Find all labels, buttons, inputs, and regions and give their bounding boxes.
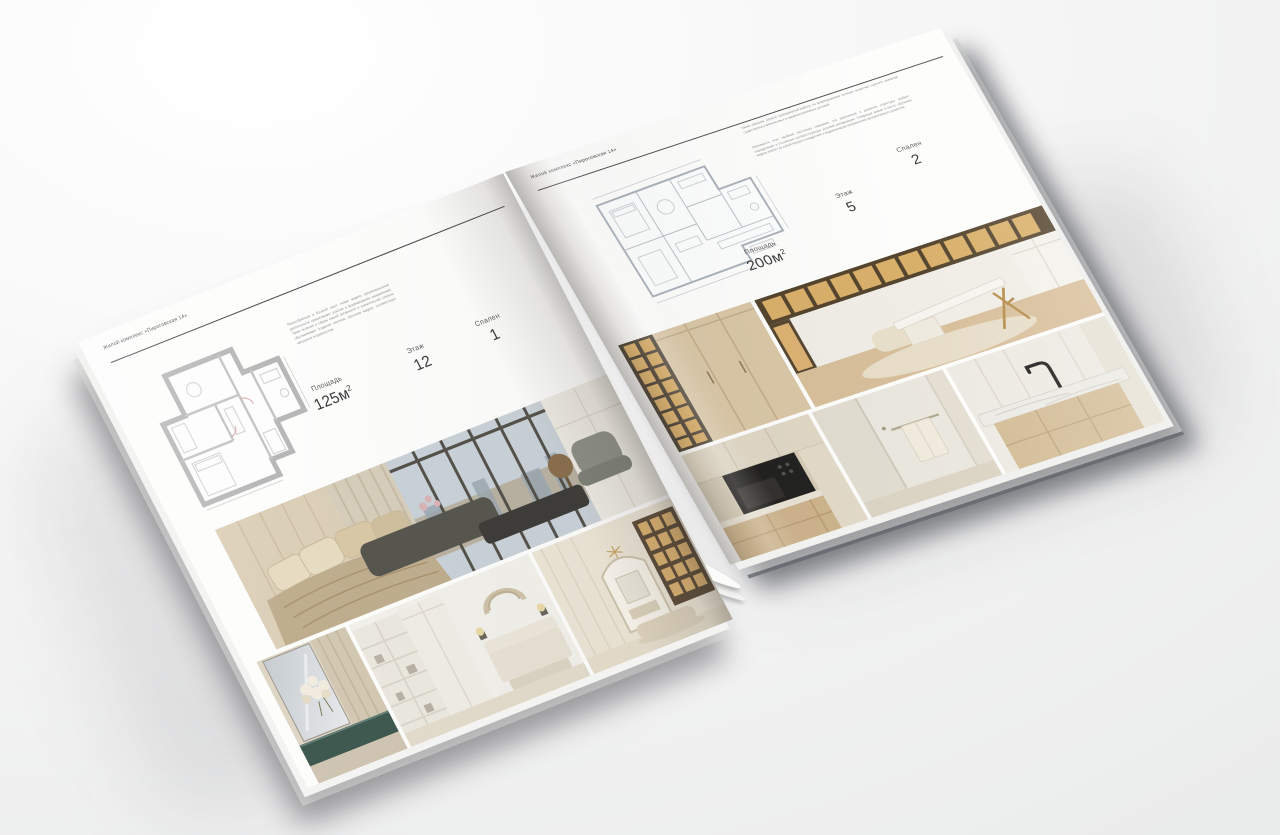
studio-backdrop: Жилой комплекс «Пироговская 14» [0, 0, 1280, 835]
spec-floor-left: Этаж 12 [388, 336, 453, 382]
spec-floor-right: Этаж 5 [816, 183, 882, 223]
spec-bedrooms-left: Спален 1 [460, 307, 525, 353]
page-left-paragraph: Разнообразный и богатый опыт: новая моде… [286, 283, 399, 346]
spec-area-left: Площадь 125м2 [292, 368, 372, 420]
page-left-header: Жилой комплекс «Пироговская 14» [102, 313, 188, 351]
page-right-header: Жилой комплекс «Пироговская 14» [530, 147, 618, 180]
spec-bedrooms-right: Спален 2 [881, 135, 947, 175]
